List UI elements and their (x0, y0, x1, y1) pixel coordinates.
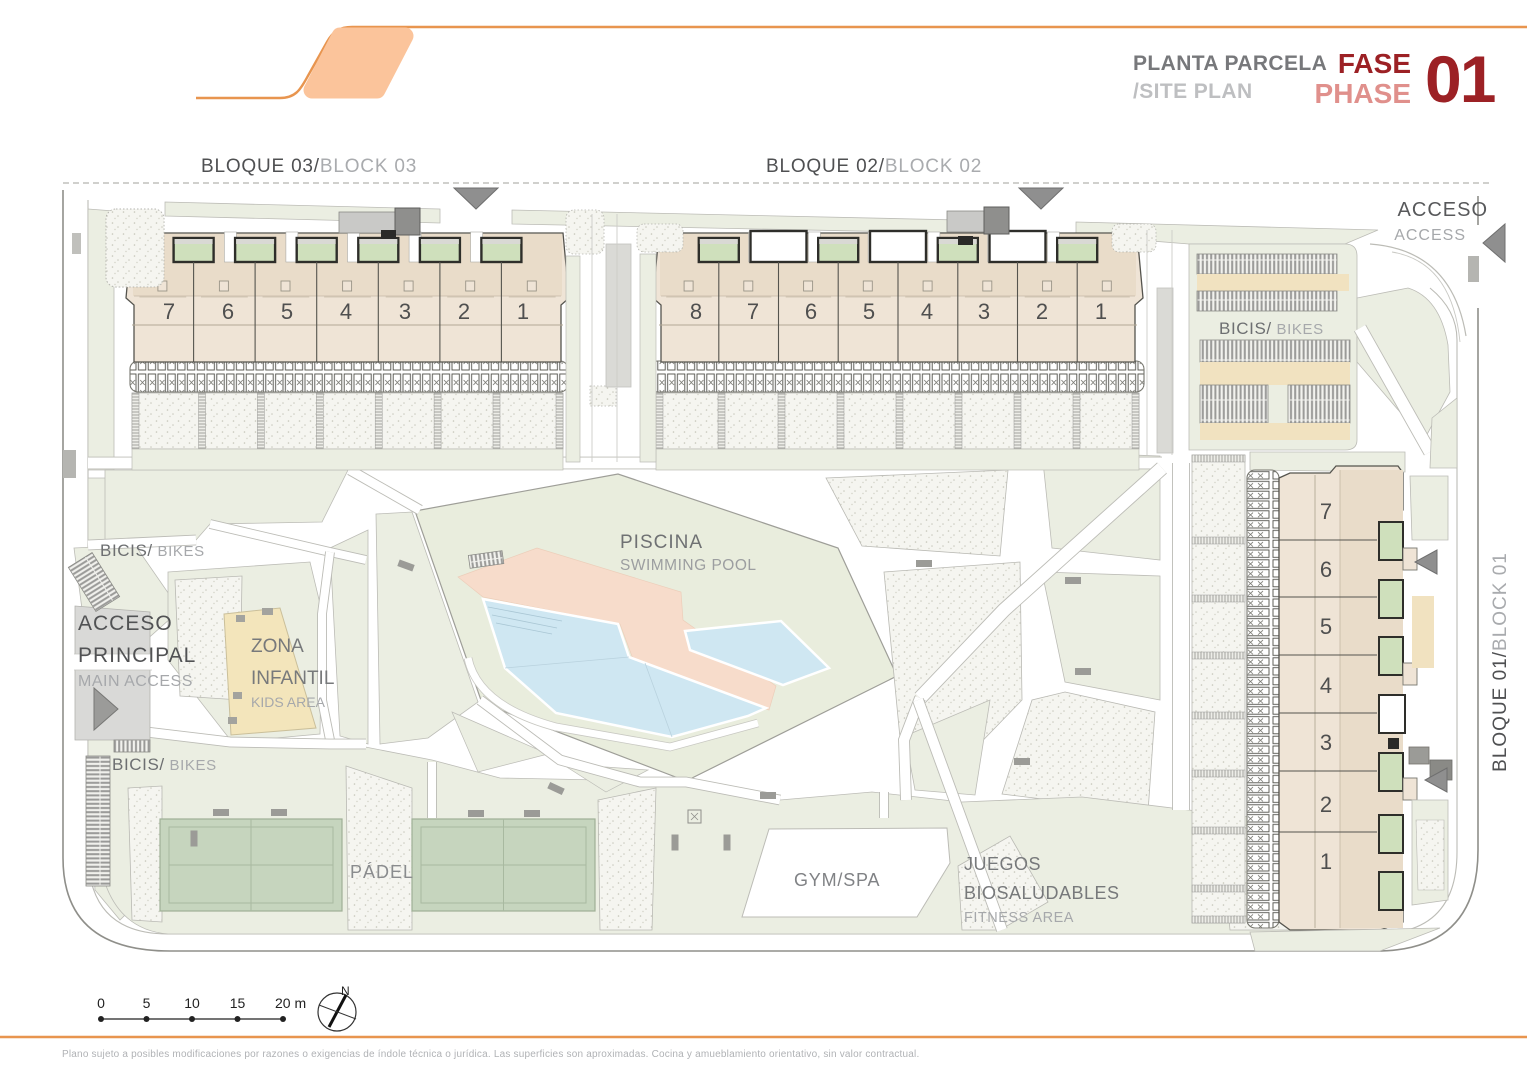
svg-text:BLOQUE 03/BLOCK 03: BLOQUE 03/BLOCK 03 (201, 156, 417, 177)
svg-text:BIOSALUDABLES: BIOSALUDABLES (964, 883, 1120, 903)
svg-text:PISCINA: PISCINA (620, 532, 703, 553)
svg-text:10: 10 (184, 995, 200, 1011)
svg-text:BICIS/ BIKES: BICIS/ BIKES (100, 541, 205, 560)
svg-text:ACCESO: ACCESO (1398, 199, 1488, 221)
svg-text:7: 7 (747, 299, 759, 324)
svg-text:4: 4 (340, 299, 352, 324)
svg-text:INFANTIL: INFANTIL (251, 668, 334, 689)
svg-text:BLOQUE 01/BLOCK 01: BLOQUE 01/BLOCK 01 (1490, 552, 1511, 772)
svg-text:4: 4 (921, 299, 933, 324)
svg-text:JUEGOS: JUEGOS (964, 854, 1041, 874)
svg-text:15: 15 (230, 995, 246, 1011)
svg-text:3: 3 (1320, 730, 1332, 755)
svg-text:6: 6 (1320, 557, 1332, 582)
svg-text:5: 5 (281, 299, 293, 324)
svg-text:6: 6 (805, 299, 817, 324)
svg-text:3: 3 (399, 299, 411, 324)
svg-text:0: 0 (97, 995, 105, 1011)
svg-text:PRINCIPAL: PRINCIPAL (78, 644, 196, 667)
svg-text:6: 6 (222, 299, 234, 324)
svg-text:PHASE: PHASE (1315, 78, 1411, 109)
svg-text:7: 7 (163, 299, 175, 324)
svg-text:2: 2 (1320, 792, 1332, 817)
svg-text:5: 5 (863, 299, 875, 324)
svg-text:01: 01 (1425, 42, 1495, 116)
svg-text:8: 8 (690, 299, 702, 324)
svg-text:4: 4 (1320, 673, 1332, 698)
svg-text:MAIN ACCESS: MAIN ACCESS (78, 673, 193, 690)
svg-text:3: 3 (978, 299, 990, 324)
svg-text:BICIS/ BIKES: BICIS/ BIKES (112, 755, 217, 774)
svg-text:2: 2 (1036, 299, 1048, 324)
svg-text:KIDS AREA: KIDS AREA (251, 694, 326, 710)
svg-text:1: 1 (1095, 299, 1107, 324)
svg-text:GYM/SPA: GYM/SPA (794, 870, 880, 890)
svg-text:PLANTA PARCELA: PLANTA PARCELA (1133, 52, 1327, 75)
svg-text:5: 5 (143, 995, 151, 1011)
svg-text:Plano sujeto a posibles modifi: Plano sujeto a posibles modificaciones p… (62, 1049, 919, 1060)
svg-text:1: 1 (1320, 849, 1332, 874)
svg-text:7: 7 (1320, 499, 1332, 524)
svg-text:FASE: FASE (1338, 48, 1411, 79)
svg-text:PÁDEL: PÁDEL (350, 862, 414, 882)
svg-text:ZONA: ZONA (251, 636, 304, 657)
svg-text:ACCESS: ACCESS (1394, 227, 1466, 244)
svg-text:ACCESO: ACCESO (78, 612, 173, 635)
svg-text:BLOQUE 02/BLOCK 02: BLOQUE 02/BLOCK 02 (766, 156, 982, 177)
svg-text:FITNESS AREA: FITNESS AREA (964, 910, 1074, 926)
svg-text:20 m: 20 m (275, 995, 306, 1011)
svg-text:2: 2 (458, 299, 470, 324)
svg-text:/SITE PLAN: /SITE PLAN (1133, 80, 1253, 103)
svg-text:5: 5 (1320, 614, 1332, 639)
svg-text:N: N (341, 984, 350, 998)
svg-text:BICIS/ BIKES: BICIS/ BIKES (1219, 319, 1324, 338)
svg-text:SWIMMING POOL: SWIMMING POOL (620, 557, 757, 574)
svg-text:1: 1 (517, 299, 529, 324)
